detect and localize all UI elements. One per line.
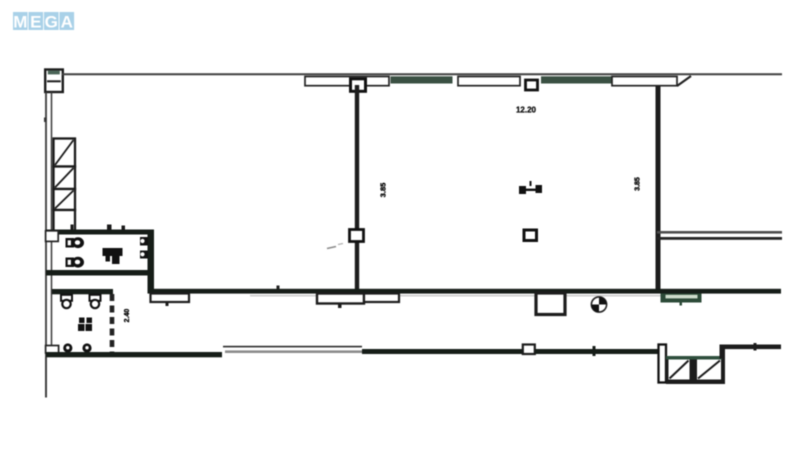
svg-text:G: G xyxy=(45,13,58,32)
svg-text:3.85: 3.85 xyxy=(379,183,388,198)
svg-text:M: M xyxy=(13,13,27,32)
svg-text:2.40: 2.40 xyxy=(124,309,131,323)
svg-text:3.85: 3.85 xyxy=(635,177,642,191)
svg-text:A: A xyxy=(61,13,73,32)
svg-text:12.20: 12.20 xyxy=(516,106,537,115)
svg-text:E: E xyxy=(30,13,41,32)
